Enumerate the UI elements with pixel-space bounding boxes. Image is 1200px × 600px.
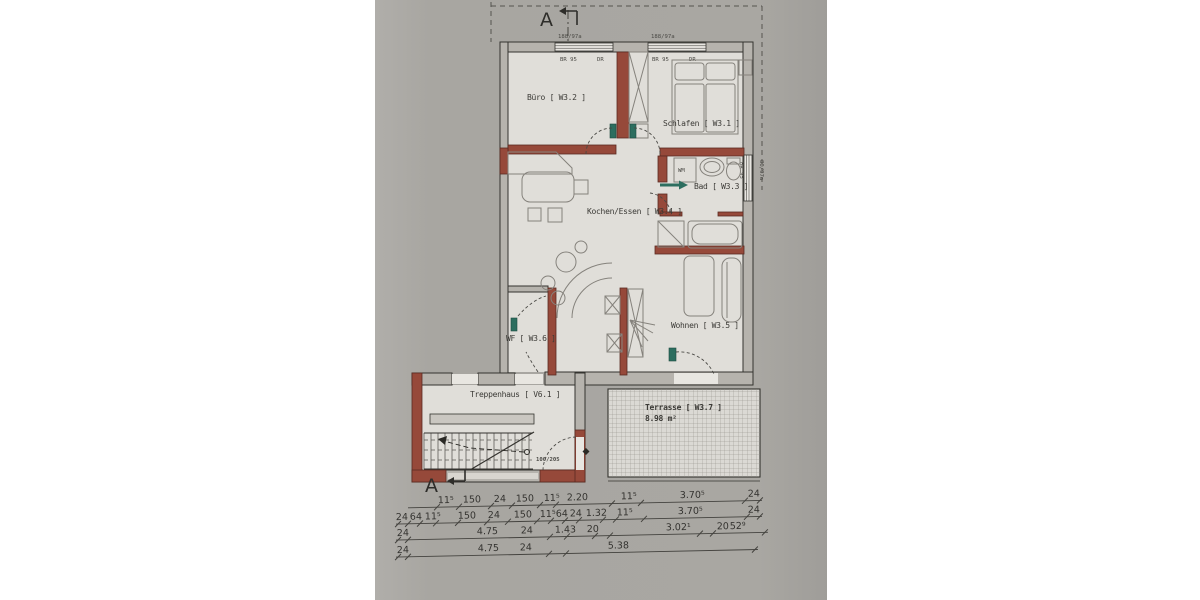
floor-plan-photo-canvas: A <box>0 0 1200 600</box>
window-size-label: 188/97a <box>651 34 675 40</box>
dim-label: 24 <box>748 488 760 499</box>
dim-label: 5.38 <box>608 540 629 551</box>
section-marker-top-label: A <box>540 9 553 31</box>
dim-label: 20 <box>717 521 729 532</box>
entrance-door-size-label: 100/205 <box>536 457 560 463</box>
window-size-label: 188/97a <box>558 34 582 40</box>
dim-label: 24 <box>396 512 408 523</box>
dim-label: 20 <box>587 524 599 535</box>
dim-label: 3.02¹ <box>666 522 691 534</box>
room-label-buero: Büro [ W3.2 ] <box>527 93 586 102</box>
section-marker-bottom-label: A <box>425 475 438 497</box>
dim-label: 1.43 <box>555 524 576 535</box>
dim-label: 24 <box>397 528 409 539</box>
room-label-treppenhaus: Treppenhaus [ V6.1 ] <box>470 390 560 399</box>
dim-label: 11⁵ <box>425 511 441 522</box>
window-parapet-label: BR 95 <box>560 57 577 63</box>
dim-label: 3.70⁵ <box>678 506 703 518</box>
dim-label: 11⁵ <box>621 491 637 502</box>
dim-label: 11⁵ <box>438 495 454 506</box>
dim-label: 1.32 <box>586 508 607 519</box>
dim-label: 52⁹ <box>730 521 746 532</box>
room-label-wohnen: Wohnen [ W3.5 ] <box>671 321 739 330</box>
dim-label: 24 <box>748 504 760 515</box>
terrace-label: Terrasse [ W3.7 ] <box>645 403 722 412</box>
dim-label: 2.20 <box>567 492 588 503</box>
window-size-label: 80/97a <box>758 160 764 180</box>
terrace: Terrasse [ W3.7 ] 8.98 m² <box>608 389 760 481</box>
room-label-wf: WF [ W3.6 ] <box>506 334 556 343</box>
dim-label: 24 <box>397 545 409 556</box>
dim-label: 11⁵ <box>544 493 560 504</box>
dim-label: 24 <box>521 525 533 536</box>
dim-label: 150 <box>514 509 532 520</box>
room-label-kochen-essen: Kochen/Essen [ W3.4 ] <box>587 207 682 216</box>
dim-label: 11⁵ <box>617 507 633 518</box>
dim-label: 64 <box>556 508 568 519</box>
dim-label: 24 <box>494 494 506 505</box>
dim-label: 3.70⁵ <box>680 490 705 502</box>
dim-label: 24 <box>570 508 582 519</box>
dim-label: 11⁵ <box>540 509 556 520</box>
dim-label: 4.75 <box>478 543 499 554</box>
dim-label: 150 <box>463 494 481 505</box>
washing-machine-label: WM <box>678 168 685 174</box>
dim-label: 24 <box>488 510 500 521</box>
room-label-bad: Bad [ W3.3 ] <box>694 182 748 191</box>
dim-label: 64 <box>410 512 422 523</box>
window-type-label: DR <box>597 57 604 63</box>
dim-label: 24 <box>520 542 532 553</box>
dim-label: 150 <box>458 510 476 521</box>
window-parapet-label: BR 95 <box>652 57 669 63</box>
dim-label: 4.75 <box>477 526 498 537</box>
terrace-area-label: 8.98 m² <box>645 414 677 423</box>
room-label-schlafen: Schlafen [ W3.1 ] <box>663 119 740 128</box>
dim-label: 150 <box>516 493 534 504</box>
